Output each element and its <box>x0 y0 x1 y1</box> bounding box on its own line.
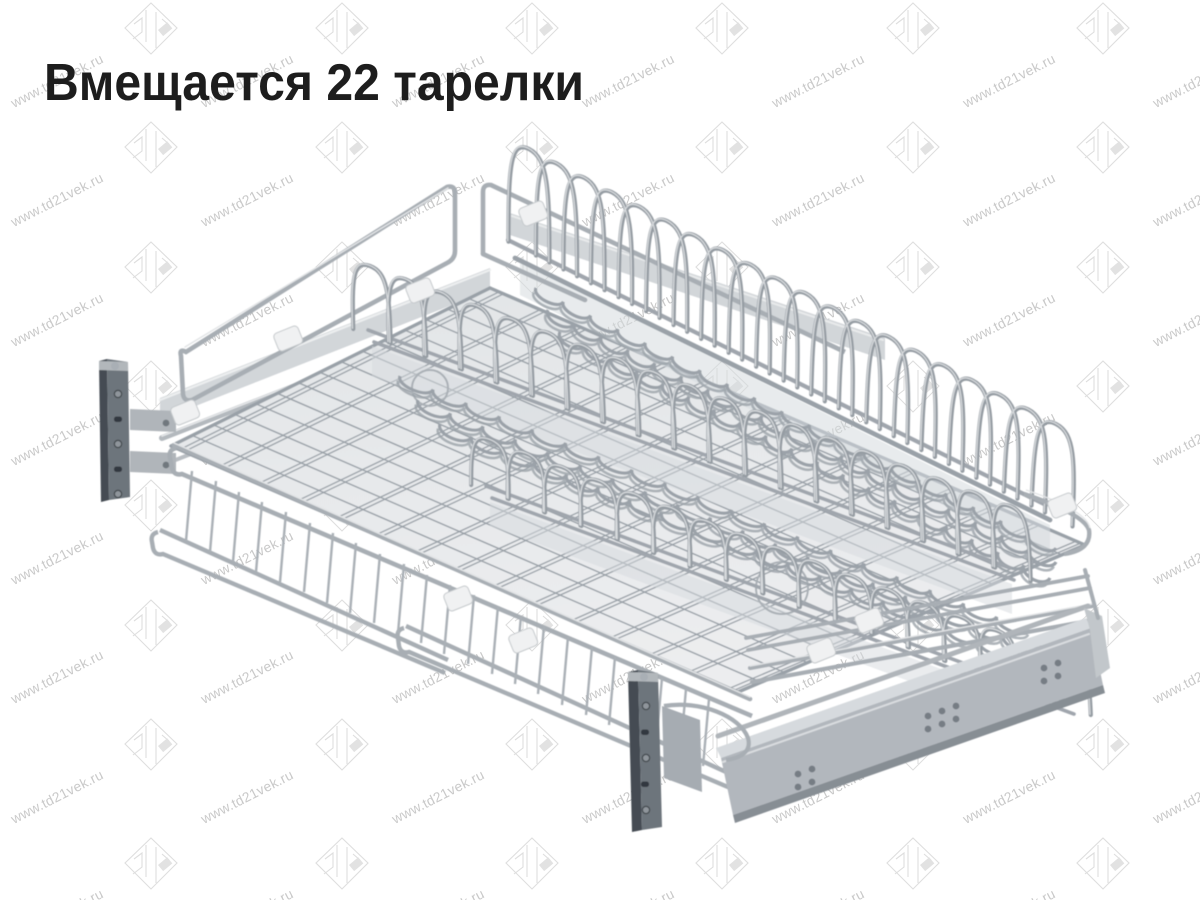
svg-text:Вмещается 22 тарелки: Вмещается 22 тарелки <box>44 54 584 112</box>
